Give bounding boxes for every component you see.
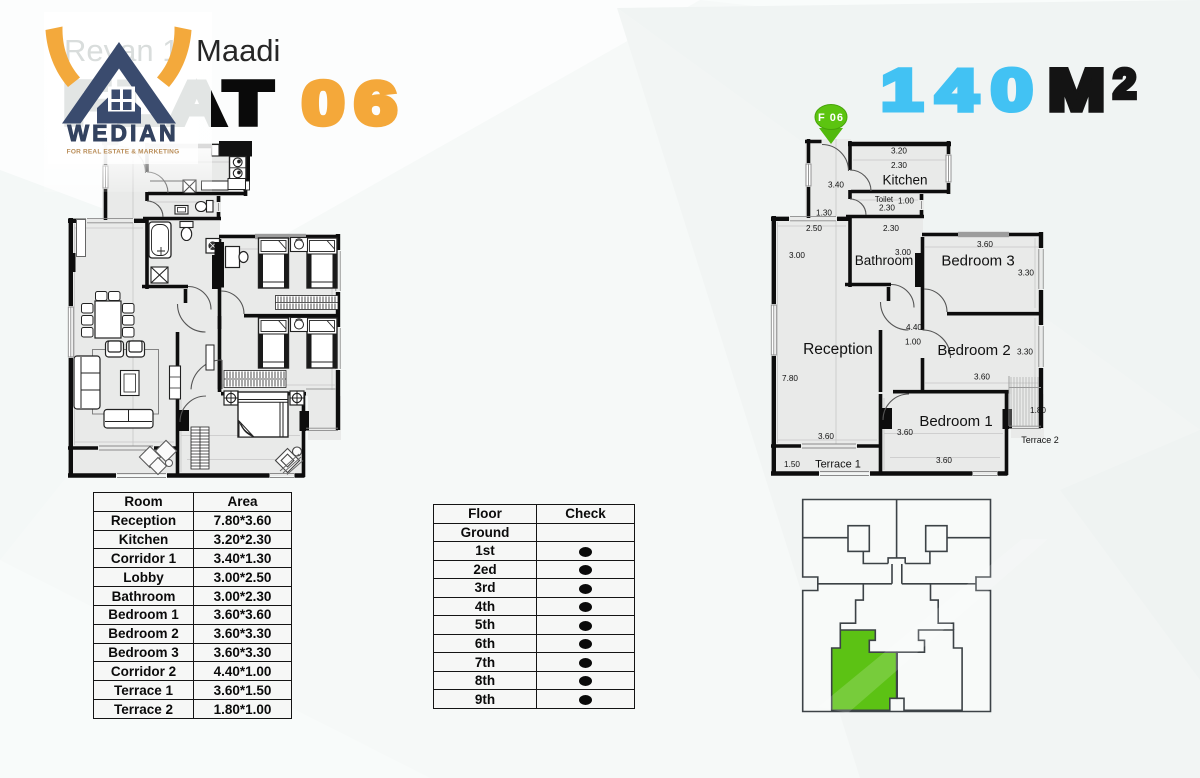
svg-text:3.60: 3.60	[977, 240, 993, 249]
svg-text:3.60: 3.60	[897, 428, 913, 437]
svg-text:2: 2	[1113, 60, 1136, 107]
svg-text:Maadi: Maadi	[196, 33, 280, 68]
svg-text:FOR REAL ESTATE & MARKETING: FOR REAL ESTATE & MARKETING	[67, 149, 180, 156]
svg-text:2.30: 2.30	[883, 224, 899, 233]
svg-text:Kitchen: Kitchen	[882, 173, 927, 188]
svg-text:3.60: 3.60	[974, 373, 990, 382]
svg-text:1.80: 1.80	[1030, 406, 1046, 415]
svg-text:4.40: 4.40	[906, 323, 922, 332]
svg-text:3.60: 3.60	[818, 432, 834, 441]
svg-text:Bedroom 3: Bedroom 3	[941, 253, 1014, 270]
svg-text:2.50: 2.50	[806, 224, 822, 233]
svg-text:1.00: 1.00	[898, 197, 914, 206]
svg-text:Bedroom 1: Bedroom 1	[919, 413, 992, 430]
svg-text:1.30: 1.30	[816, 209, 832, 218]
svg-text:3.30: 3.30	[1017, 348, 1033, 357]
svg-text:2.30: 2.30	[879, 204, 895, 213]
svg-text:M: M	[1048, 59, 1105, 123]
svg-text:3.60: 3.60	[936, 456, 952, 465]
svg-text:Reception: Reception	[803, 341, 873, 358]
svg-text:3.20: 3.20	[891, 147, 907, 156]
svg-text:Terrace 2: Terrace 2	[1021, 435, 1059, 445]
svg-text:Bedroom 2: Bedroom 2	[937, 342, 1010, 359]
svg-text:3.00: 3.00	[789, 251, 805, 260]
svg-text:WEDIAN: WEDIAN	[67, 120, 178, 146]
svg-text:7.80: 7.80	[782, 374, 798, 383]
svg-text:F 06: F 06	[818, 112, 844, 124]
svg-text:1.50: 1.50	[784, 460, 800, 469]
svg-text:3.30: 3.30	[1018, 269, 1034, 278]
svg-text:140: 140	[881, 58, 1046, 123]
svg-text:2.30: 2.30	[891, 161, 907, 170]
svg-text:3.40: 3.40	[828, 181, 844, 190]
svg-text:1.00: 1.00	[905, 338, 921, 347]
svg-text:3.00: 3.00	[895, 248, 911, 257]
svg-text:Terrace 1: Terrace 1	[815, 459, 861, 471]
svg-text:06: 06	[302, 70, 407, 137]
